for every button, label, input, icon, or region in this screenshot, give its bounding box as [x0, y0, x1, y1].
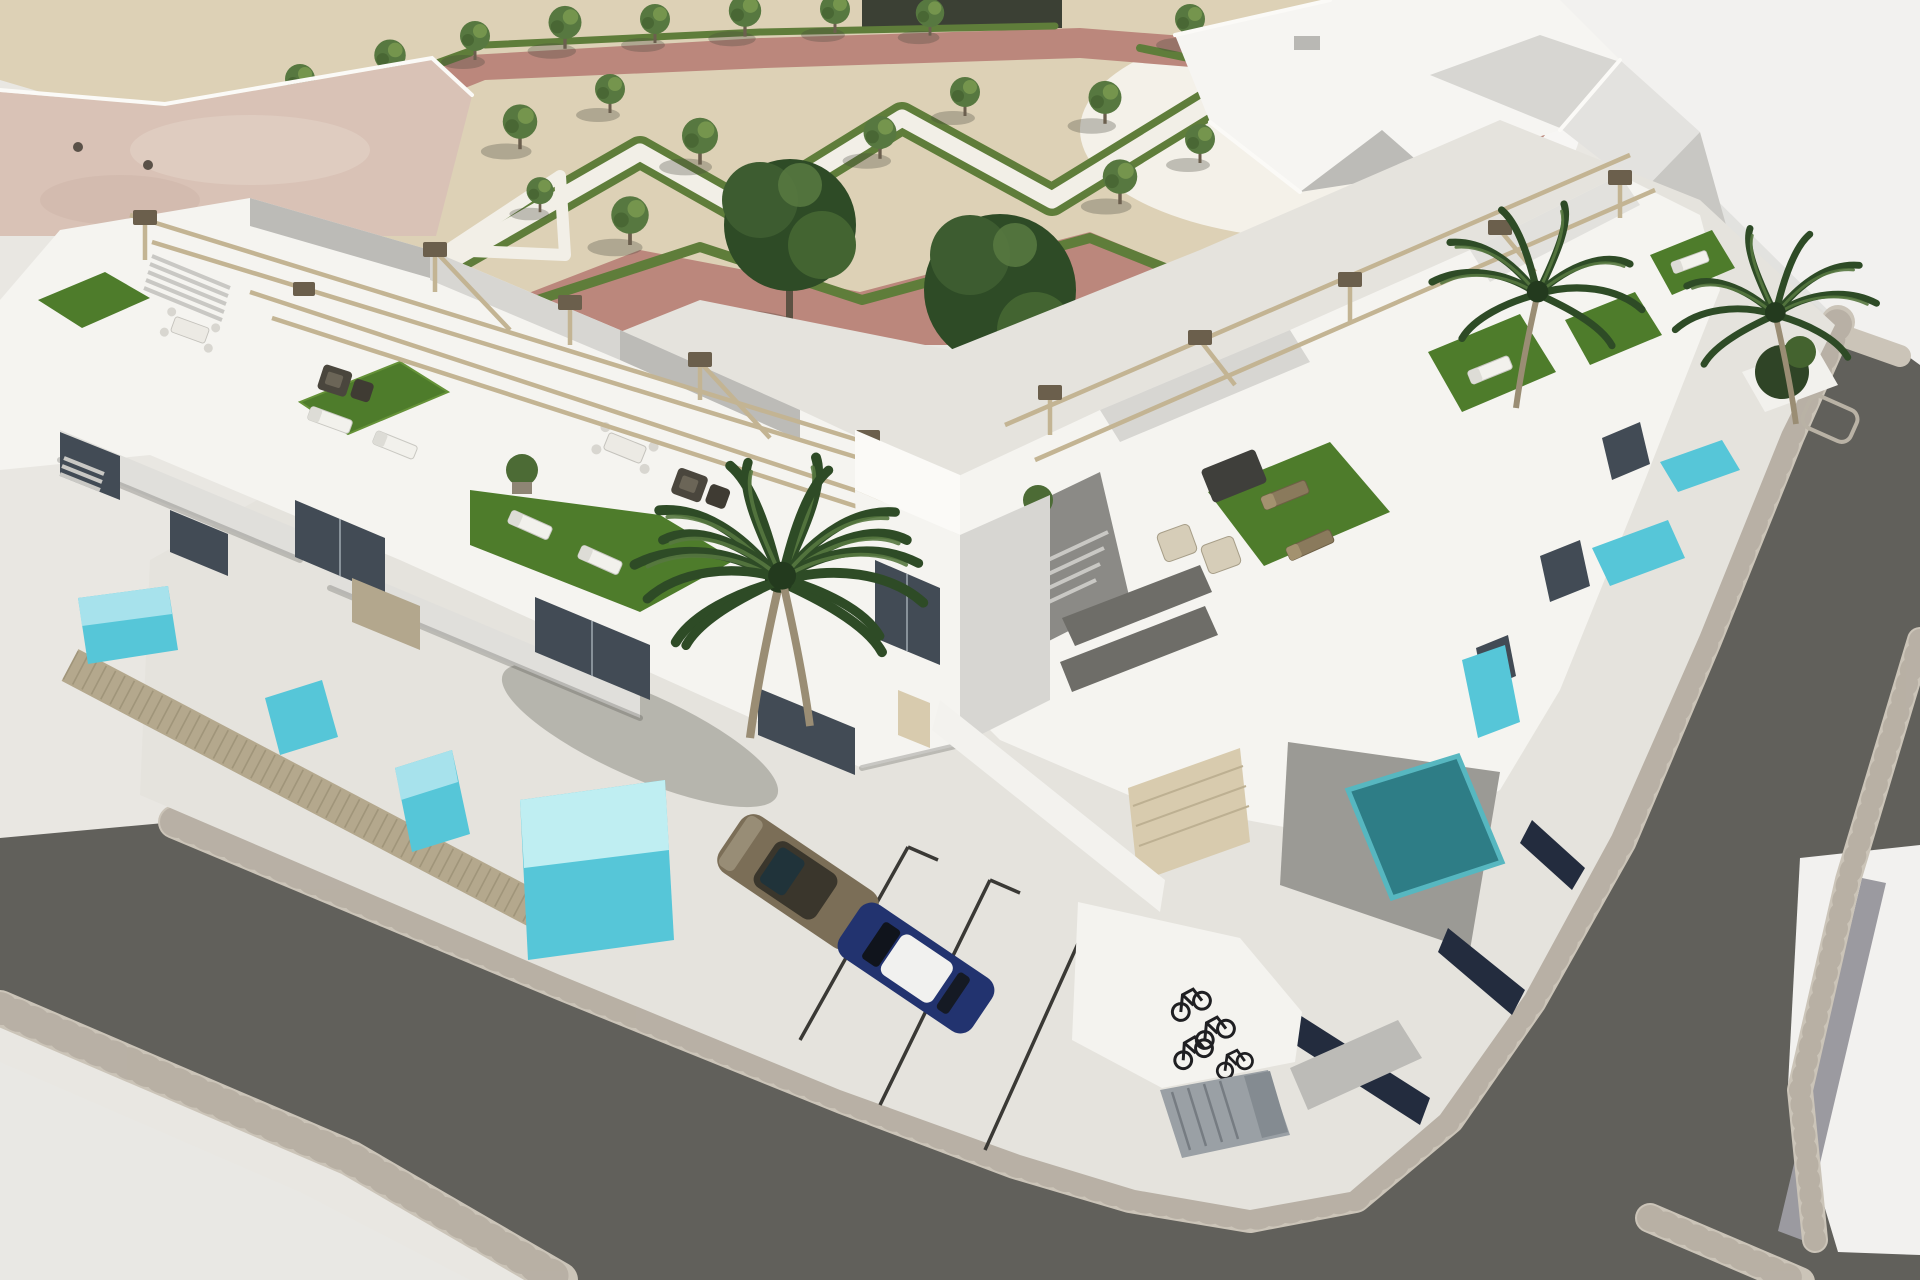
potted-tree — [506, 454, 538, 486]
scene-svg — [0, 0, 1920, 1280]
roof-drain-2 — [143, 160, 153, 170]
roof-drain — [73, 142, 83, 152]
render-canvas — [0, 0, 1920, 1280]
roof-blotch — [130, 115, 370, 185]
rooftop-unit — [1294, 36, 1320, 50]
planter-pot — [512, 482, 532, 494]
planter-bush-top — [1784, 336, 1816, 368]
